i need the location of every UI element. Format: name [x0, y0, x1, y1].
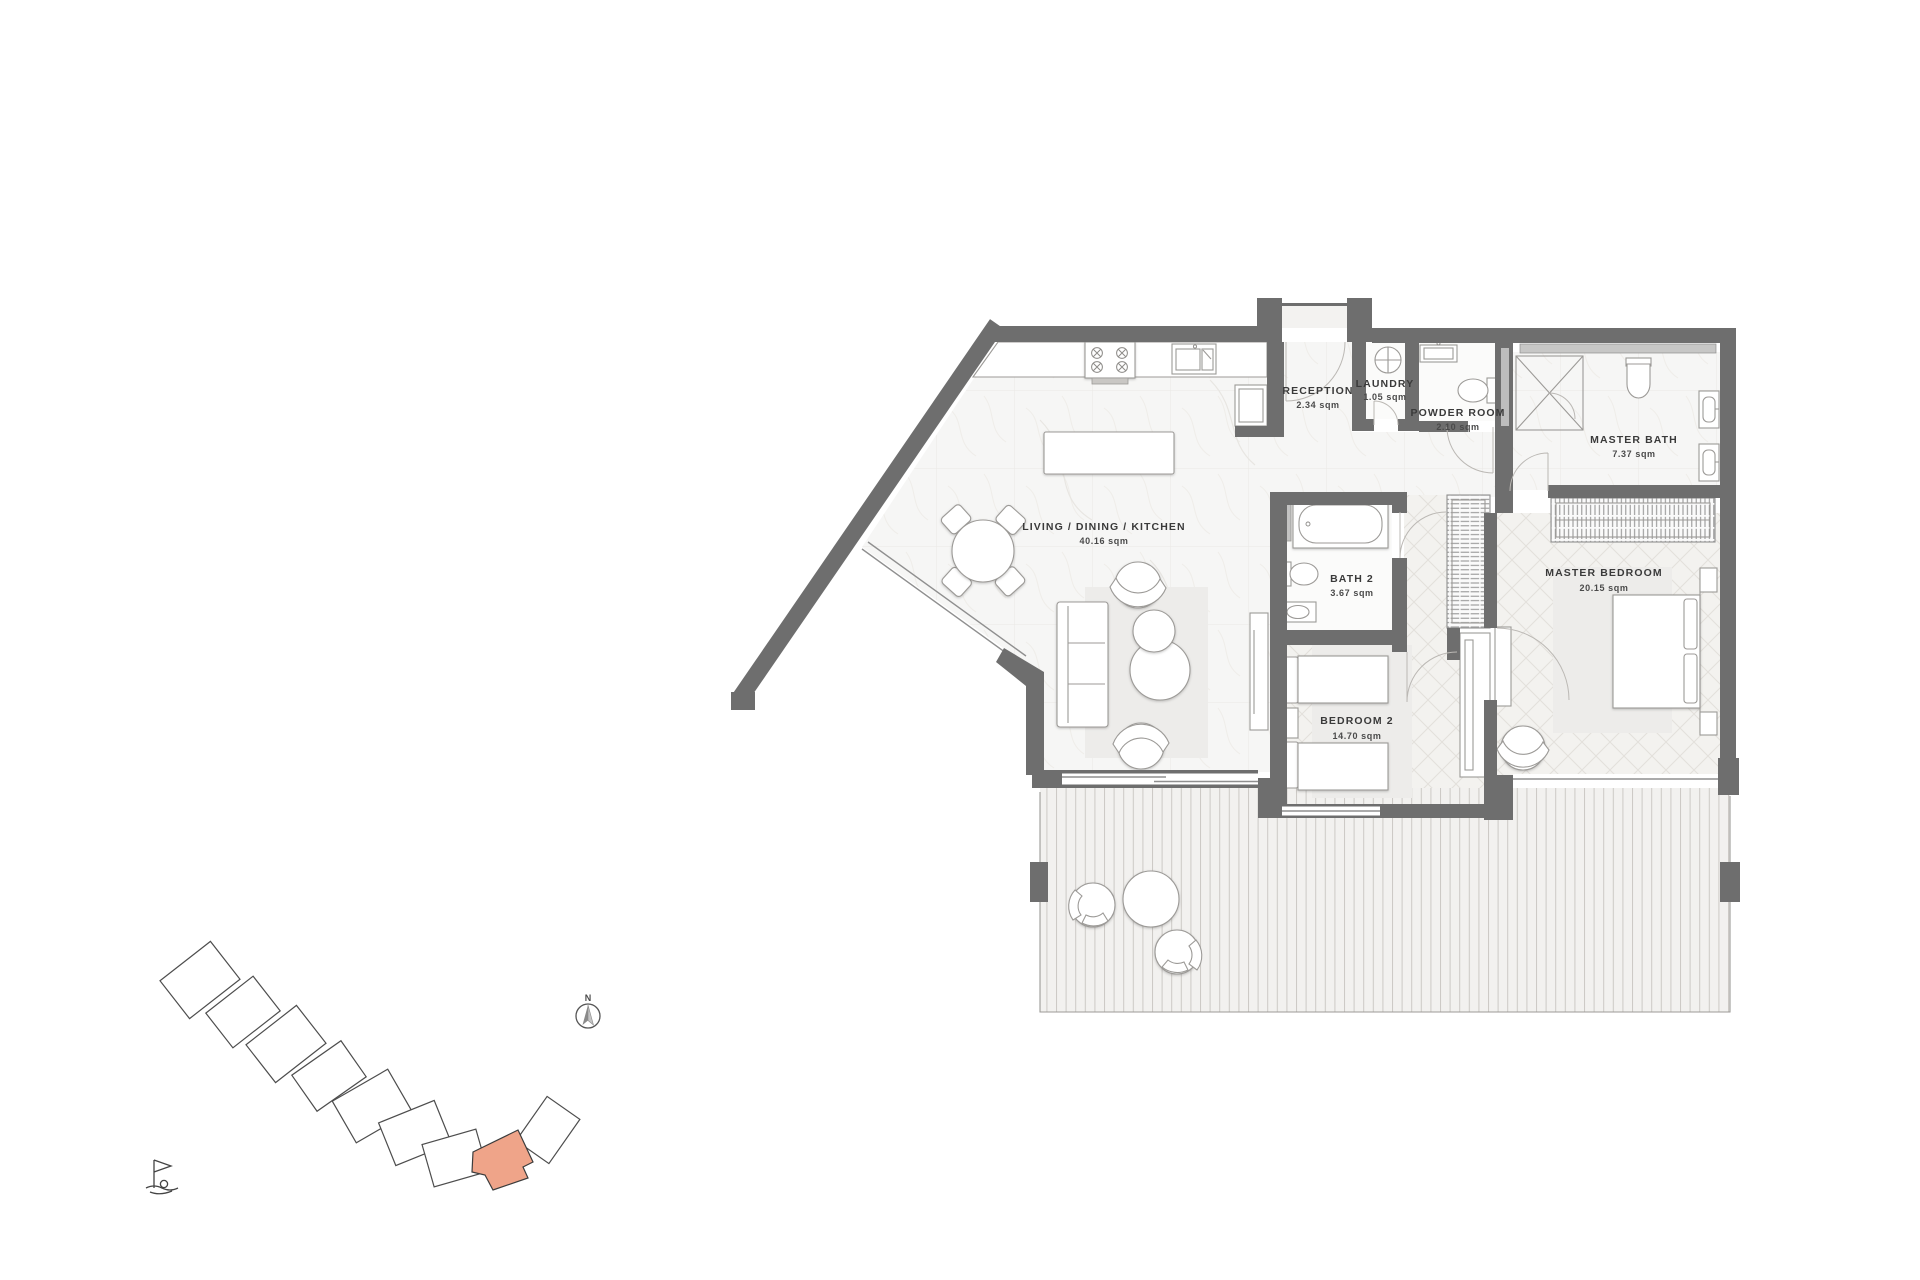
- room-area-reception: 2.34 sqm: [1296, 400, 1339, 410]
- wall-pier: [1484, 775, 1513, 820]
- wall-bath2-top: [1270, 492, 1407, 505]
- wall-top-right: [1372, 328, 1733, 343]
- wall-entry-right: [1347, 298, 1372, 342]
- sink-icon: [1420, 342, 1457, 362]
- wall-entry-left: [1257, 298, 1282, 342]
- terrace-pier: [1030, 862, 1048, 902]
- room-label-powder: POWDER ROOM: [1411, 407, 1506, 419]
- room-area-masterbath: 7.37 sqm: [1612, 449, 1655, 459]
- kitchen-sink-icon: [1172, 344, 1216, 374]
- bed-icon: [1613, 570, 1700, 733]
- wall-kitchen-cap: [1235, 426, 1284, 437]
- twin-bed-icon: [1279, 742, 1388, 790]
- wall-masterbedroom-left: [1484, 513, 1497, 628]
- room-area-bath2: 3.67 sqm: [1330, 588, 1373, 598]
- tv-console-icon: [1250, 613, 1268, 730]
- key-plan: [160, 941, 580, 1190]
- washing-machine-icon: [1375, 347, 1401, 373]
- room-label-bedroom2: BEDROOM 2: [1320, 715, 1394, 727]
- golf-flag-icon: [146, 1160, 178, 1194]
- room-area-laundry: 1.05 sqm: [1363, 392, 1406, 402]
- toilet-icon: [1282, 562, 1318, 586]
- compass-needle-icon: [588, 1005, 594, 1025]
- wall-living-right: [1270, 492, 1287, 804]
- masterbath-counter: [1520, 344, 1716, 353]
- wall-entry-lintel: [1282, 303, 1347, 306]
- room-label-reception: RECEPTION: [1282, 385, 1353, 397]
- outdoor-table-icon: [1123, 871, 1179, 927]
- sofa-icon: [1057, 602, 1108, 727]
- hall-wardrobe-icon: [1447, 495, 1490, 628]
- wall-bedroom2-bottom: [1380, 804, 1484, 818]
- wall-stub: [1447, 628, 1460, 660]
- side-table-icon: [1133, 610, 1175, 652]
- room-label-masterbedroom: MASTER BEDROOM: [1545, 567, 1662, 579]
- sink-icon: [1699, 391, 1719, 428]
- room-area-powder: 2.10 sqm: [1436, 422, 1479, 432]
- room-label-bath2: BATH 2: [1330, 573, 1374, 585]
- wall-right: [1720, 328, 1736, 792]
- sink-icon: [1699, 444, 1719, 481]
- wall-pier: [1258, 778, 1277, 818]
- wall-masterbath-bottom: [1548, 485, 1720, 498]
- toilet-icon: [1458, 378, 1497, 403]
- wardrobe-icon: [1551, 498, 1715, 542]
- wall-top-left: [992, 326, 1264, 342]
- nightstand-icon: [1700, 568, 1717, 592]
- wall-cap: [731, 692, 755, 710]
- nightstand-icon: [1700, 712, 1717, 735]
- wall-bath2-right: [1392, 505, 1407, 513]
- tall-cabinet-icon: [1235, 385, 1267, 426]
- door-leaf: [1495, 627, 1511, 706]
- room-label-masterbath: MASTER BATH: [1590, 434, 1678, 446]
- room-masterbath-floor: [1513, 352, 1720, 490]
- wall-masterbedroom-left: [1484, 700, 1497, 775]
- room-area-masterbedroom: 20.15 sqm: [1580, 583, 1629, 593]
- compass-needle-icon: [583, 1005, 589, 1025]
- toilet-icon: [1626, 358, 1651, 398]
- compass-north-label: N: [585, 993, 592, 1003]
- room-label-living: LIVING / DINING / KITCHEN: [1022, 521, 1185, 533]
- north-compass: N: [576, 993, 600, 1028]
- stove-icon: [1085, 342, 1135, 378]
- terrace-pier: [1720, 862, 1740, 902]
- entry-vestibule-floor: [1282, 306, 1347, 328]
- bathtub-icon: [1293, 500, 1388, 548]
- upper-hall-floor: [1417, 432, 1495, 497]
- room-label-laundry: LAUNDRY: [1356, 378, 1415, 390]
- corridor-floor: [1404, 495, 1447, 660]
- floor-plan-page: LIVING / DINING / KITCHEN 40.16 sqm RECE…: [0, 0, 1920, 1280]
- room-area-bedroom2: 14.70 sqm: [1333, 731, 1382, 741]
- wall-pier: [1718, 758, 1739, 795]
- kitchen-island-icon: [1044, 432, 1174, 474]
- twin-bed-icon: [1279, 656, 1388, 703]
- wall-bath2-bottom: [1270, 630, 1407, 645]
- floor-plan-canvas: LIVING / DINING / KITCHEN 40.16 sqm RECE…: [0, 0, 1920, 1280]
- room-area-living: 40.16 sqm: [1080, 536, 1129, 546]
- wall-laundry-bottom: [1398, 419, 1419, 431]
- wall-laundry-bottom: [1352, 419, 1374, 431]
